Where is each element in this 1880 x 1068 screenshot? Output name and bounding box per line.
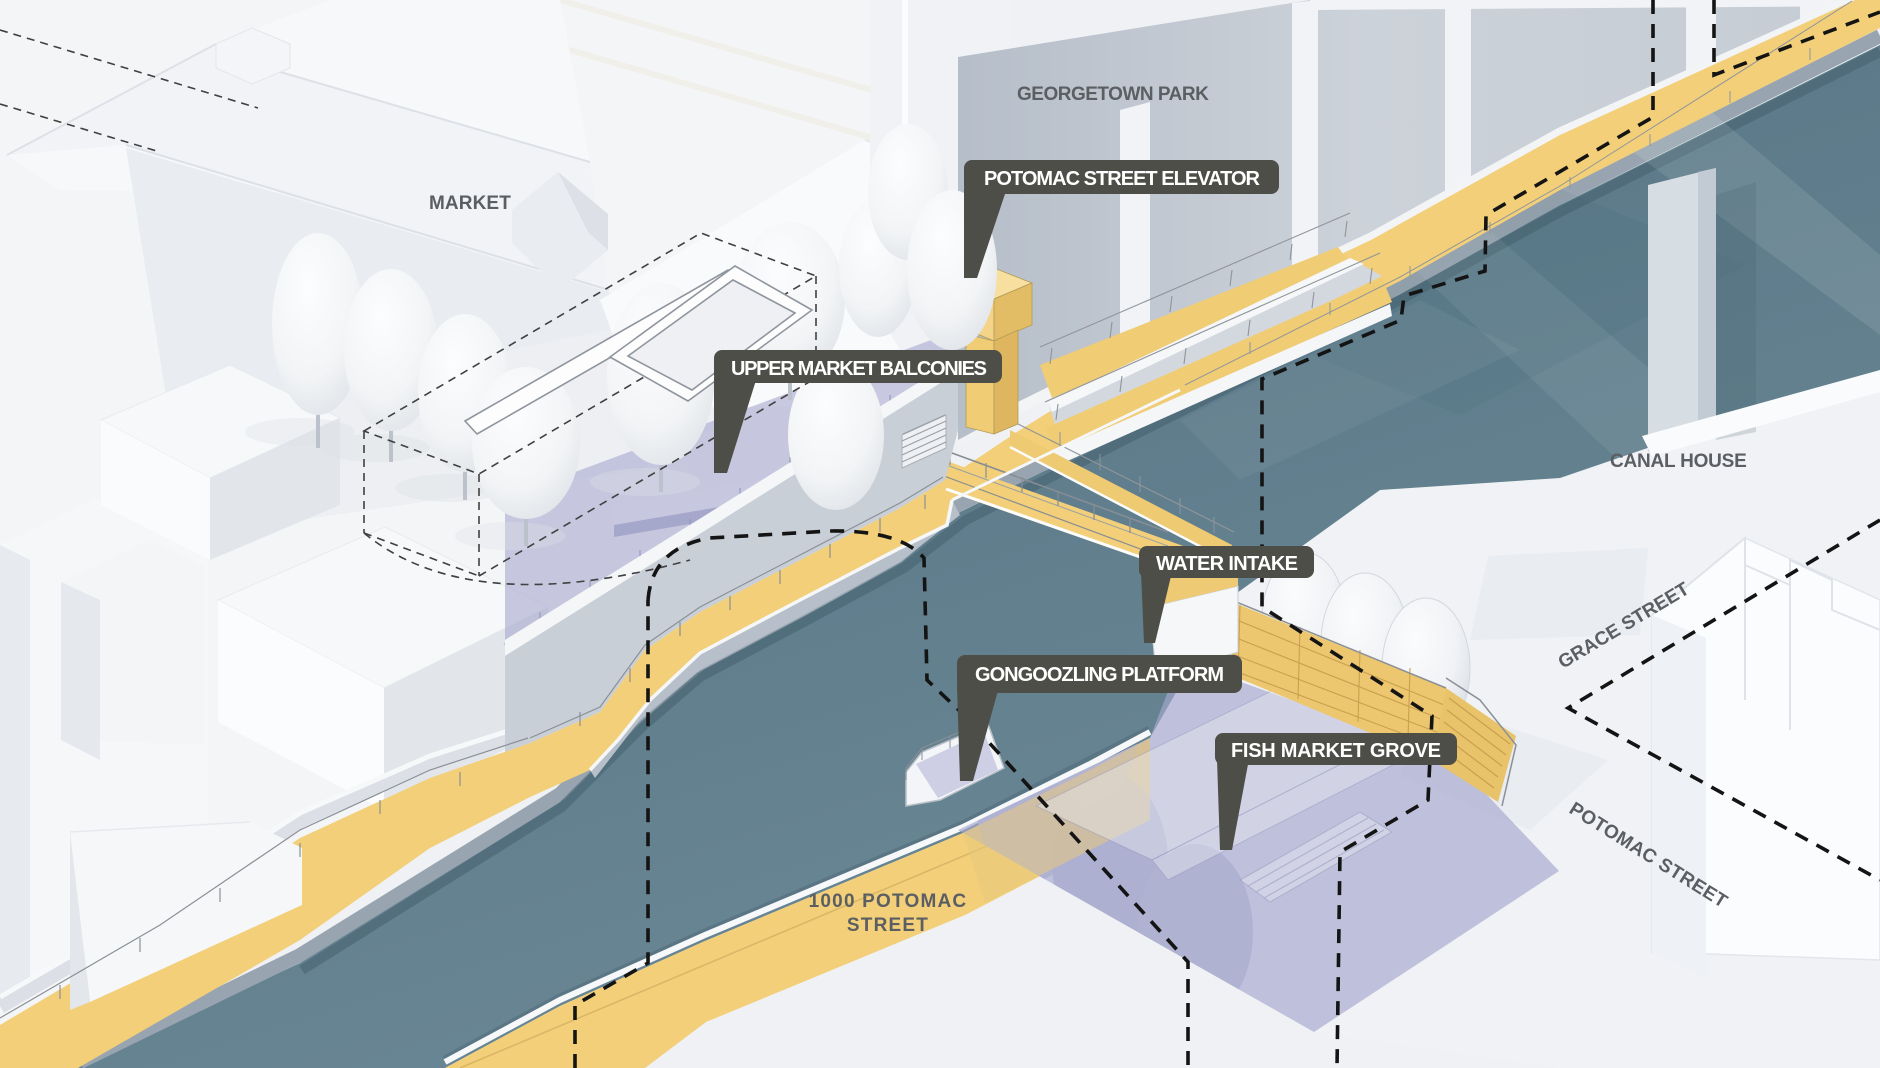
svg-text:STREET: STREET [847,915,929,936]
svg-text:POTOMAC STREET ELEVATOR: POTOMAC STREET ELEVATOR [984,168,1261,190]
svg-text:1000 POTOMAC: 1000 POTOMAC [809,891,968,912]
svg-text:UPPER MARKET BALCONIES: UPPER MARKET BALCONIES [731,358,987,380]
svg-text:GEORGETOWN PARK: GEORGETOWN PARK [1017,84,1210,105]
svg-text:WATER INTAKE: WATER INTAKE [1156,553,1298,575]
svg-text:MARKET: MARKET [429,193,512,214]
svg-text:CANAL HOUSE: CANAL HOUSE [1610,451,1748,472]
svg-text:FISH MARKET GROVE: FISH MARKET GROVE [1231,740,1441,762]
svg-text:GONGOOZLING PLATFORM: GONGOOZLING PLATFORM [975,664,1224,686]
